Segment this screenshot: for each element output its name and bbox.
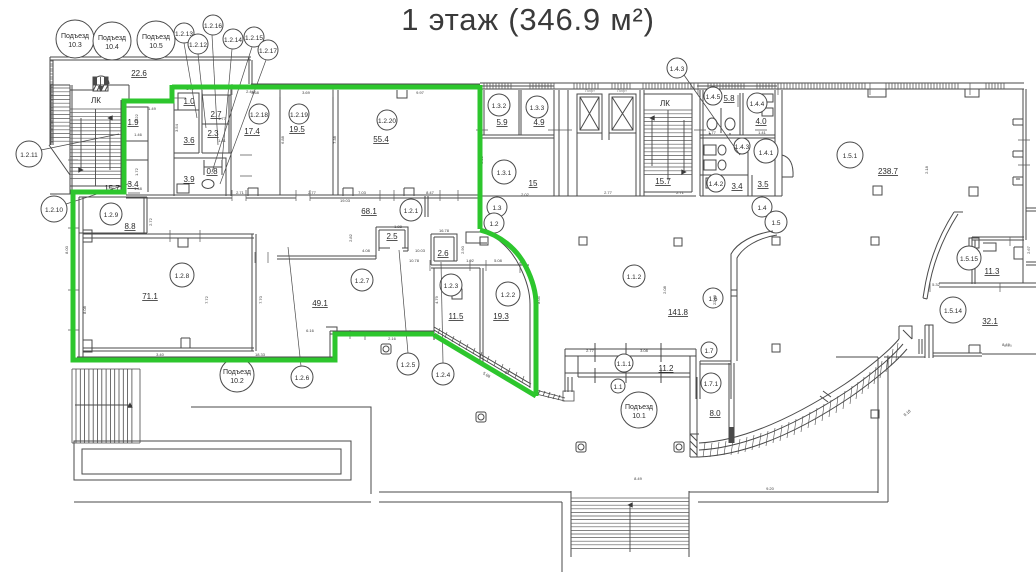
svg-text:2.71: 2.71	[236, 190, 245, 195]
svg-text:6.88: 6.88	[280, 135, 285, 144]
svg-text:1.4.4: 1.4.4	[750, 101, 765, 108]
svg-text:1.49: 1.49	[148, 106, 157, 111]
svg-text:5.9: 5.9	[496, 118, 508, 127]
svg-text:1.5: 1.5	[771, 220, 780, 227]
svg-text:4.79: 4.79	[434, 295, 439, 304]
svg-text:1.1.1: 1.1.1	[617, 361, 632, 368]
svg-text:2.5: 2.5	[386, 232, 398, 241]
svg-text:22.08: 22.08	[712, 294, 717, 305]
svg-text:9.20: 9.20	[766, 486, 775, 491]
svg-text:1.2.18: 1.2.18	[250, 112, 268, 119]
svg-text:Подъезд: Подъезд	[223, 369, 251, 376]
svg-text:1.92: 1.92	[466, 258, 475, 263]
svg-text:1.2.12: 1.2.12	[189, 42, 207, 49]
svg-text:49.1: 49.1	[312, 299, 328, 308]
svg-text:3.4: 3.4	[731, 182, 743, 191]
svg-text:1.46: 1.46	[134, 132, 143, 137]
svg-text:5.08: 5.08	[494, 258, 503, 263]
svg-text:1.2: 1.2	[489, 221, 498, 228]
svg-text:1.41: 1.41	[758, 130, 767, 135]
svg-text:1.2.6: 1.2.6	[295, 375, 310, 382]
svg-text:1.77: 1.77	[218, 116, 227, 121]
svg-text:8.0: 8.0	[709, 409, 721, 418]
svg-text:8.18: 8.18	[902, 408, 912, 417]
svg-text:1.2.16: 1.2.16	[204, 23, 222, 30]
svg-text:1.3.3: 1.3.3	[530, 105, 545, 112]
svg-text:3.54: 3.54	[174, 123, 179, 132]
svg-text:3.69: 3.69	[302, 90, 311, 95]
svg-text:1.2.3: 1.2.3	[444, 283, 459, 290]
svg-text:1.77: 1.77	[708, 130, 717, 135]
svg-text:2.44: 2.44	[246, 89, 255, 94]
svg-text:1.2.7: 1.2.7	[355, 278, 370, 285]
svg-text:Подъезд: Подъезд	[625, 404, 653, 411]
svg-text:3.6: 3.6	[183, 136, 195, 145]
svg-text:2.67: 2.67	[1026, 245, 1031, 254]
svg-text:3.08: 3.08	[640, 348, 649, 353]
svg-text:1.2.19: 1.2.19	[290, 112, 308, 119]
svg-text:1.4.5: 1.4.5	[706, 94, 721, 101]
svg-text:19.03: 19.03	[340, 198, 351, 203]
svg-text:1.3.1: 1.3.1	[497, 170, 512, 177]
svg-text:2.77: 2.77	[308, 190, 317, 195]
svg-text:2.02: 2.02	[521, 192, 530, 197]
svg-text:2.16: 2.16	[388, 336, 397, 341]
svg-text:2.77: 2.77	[586, 348, 595, 353]
svg-text:2.08: 2.08	[662, 285, 667, 294]
svg-text:10.1: 10.1	[632, 413, 646, 420]
svg-text:1.48: 1.48	[134, 186, 143, 191]
svg-text:6.16: 6.16	[306, 328, 315, 333]
svg-text:11.5: 11.5	[449, 312, 465, 321]
svg-text:32.1: 32.1	[982, 317, 998, 326]
svg-text:2.71: 2.71	[676, 190, 685, 195]
svg-text:1.7.1: 1.7.1	[704, 381, 719, 388]
svg-text:5.08: 5.08	[482, 371, 492, 380]
svg-text:4.08: 4.08	[362, 248, 371, 253]
svg-text:7.72: 7.72	[204, 295, 209, 304]
svg-text:1.41: 1.41	[218, 138, 227, 143]
svg-text:ЛК: ЛК	[660, 99, 670, 108]
svg-text:11.3: 11.3	[985, 267, 1001, 276]
svg-text:5.32: 5.32	[932, 282, 941, 287]
svg-text:1.4.2: 1.4.2	[709, 181, 724, 188]
svg-text:2.77: 2.77	[604, 190, 613, 195]
svg-text:1.2.20: 1.2.20	[378, 118, 396, 125]
svg-text:8.49: 8.49	[1002, 342, 1011, 347]
svg-text:ЛК: ЛК	[91, 96, 101, 105]
svg-text:11.2: 11.2	[659, 364, 675, 373]
svg-text:8.00: 8.00	[64, 245, 69, 254]
svg-text:1.2.14: 1.2.14	[224, 37, 242, 44]
svg-text:15: 15	[529, 179, 538, 188]
svg-text:1 этаж (346.9 м²): 1 этаж (346.9 м²)	[401, 2, 655, 37]
svg-text:8.47: 8.47	[426, 190, 435, 195]
svg-text:1.72: 1.72	[134, 167, 139, 176]
svg-text:Лифт: Лифт	[585, 88, 595, 93]
svg-text:15.7: 15.7	[655, 177, 671, 186]
svg-text:1.2.2: 1.2.2	[501, 292, 516, 299]
svg-text:1.2.4: 1.2.4	[436, 372, 451, 379]
svg-text:19.5: 19.5	[289, 125, 305, 134]
svg-text:10.3: 10.3	[68, 42, 82, 49]
svg-text:17.4: 17.4	[244, 127, 260, 136]
svg-text:1.4.3: 1.4.3	[670, 66, 685, 73]
svg-text:22.6: 22.6	[131, 69, 147, 78]
svg-text:71.1: 71.1	[142, 292, 158, 301]
svg-text:68.1: 68.1	[361, 207, 377, 216]
svg-text:1.2.10: 1.2.10	[45, 207, 63, 214]
svg-text:1.2.15: 1.2.15	[245, 35, 263, 42]
svg-text:55.4: 55.4	[373, 135, 389, 144]
svg-text:1.2.9: 1.2.9	[104, 212, 119, 219]
svg-text:8.49: 8.49	[634, 476, 643, 481]
svg-text:1.1.2: 1.1.2	[627, 274, 642, 281]
svg-text:1.3: 1.3	[492, 205, 501, 212]
svg-text:10.5: 10.5	[149, 43, 163, 50]
svg-text:4.0: 4.0	[755, 117, 767, 126]
svg-text:1.2.1: 1.2.1	[404, 208, 419, 215]
svg-text:141.8: 141.8	[668, 308, 689, 317]
svg-text:8.08: 8.08	[82, 305, 87, 314]
svg-text:19.3: 19.3	[493, 312, 509, 321]
svg-text:2.72: 2.72	[148, 217, 153, 226]
svg-text:Лифт: Лифт	[617, 88, 627, 93]
svg-text:1.2.5: 1.2.5	[401, 362, 416, 369]
svg-text:1.4.1: 1.4.1	[759, 150, 774, 157]
svg-text:3.5: 3.5	[757, 180, 769, 189]
svg-text:3.9: 3.9	[183, 175, 195, 184]
svg-text:1.5.1: 1.5.1	[843, 153, 858, 160]
svg-text:1.2.11: 1.2.11	[20, 152, 38, 159]
svg-text:1.5.14: 1.5.14	[944, 308, 962, 315]
svg-text:Подъезд: Подъезд	[61, 33, 89, 40]
svg-text:4.9: 4.9	[533, 118, 545, 127]
svg-text:10.4: 10.4	[105, 44, 119, 51]
svg-text:1.1: 1.1	[613, 384, 622, 391]
svg-text:3.40: 3.40	[156, 352, 165, 357]
svg-text:3.22: 3.22	[134, 113, 139, 122]
svg-text:1.3.2: 1.3.2	[492, 103, 507, 110]
svg-text:2.6: 2.6	[437, 249, 449, 258]
svg-text:1.4: 1.4	[757, 205, 766, 212]
svg-text:2.90: 2.90	[460, 245, 465, 254]
svg-text:2.18: 2.18	[924, 165, 929, 174]
svg-text:Подъезд: Подъезд	[98, 35, 126, 42]
svg-text:10.78: 10.78	[409, 258, 420, 263]
svg-text:1.7: 1.7	[704, 348, 713, 355]
svg-text:9.97: 9.97	[416, 90, 425, 95]
svg-text:2.82: 2.82	[348, 233, 353, 242]
svg-text:1.2.8: 1.2.8	[175, 273, 190, 280]
svg-text:7.70: 7.70	[258, 295, 263, 304]
svg-text:1.88: 1.88	[394, 224, 403, 229]
svg-text:10.2: 10.2	[230, 378, 244, 385]
svg-text:7.38: 7.38	[332, 135, 337, 144]
svg-text:7.03: 7.03	[358, 190, 367, 195]
svg-text:Подъезд: Подъезд	[142, 34, 170, 41]
svg-text:1.4.3: 1.4.3	[735, 144, 750, 151]
svg-text:8.8: 8.8	[124, 222, 136, 231]
svg-text:10.03: 10.03	[415, 248, 426, 253]
svg-text:5.8: 5.8	[723, 94, 735, 103]
svg-text:238.7: 238.7	[878, 167, 899, 176]
svg-text:1.2.17: 1.2.17	[259, 48, 277, 55]
svg-text:16.78: 16.78	[439, 228, 450, 233]
svg-text:18.33: 18.33	[255, 352, 266, 357]
svg-text:1.5.15: 1.5.15	[960, 256, 978, 263]
